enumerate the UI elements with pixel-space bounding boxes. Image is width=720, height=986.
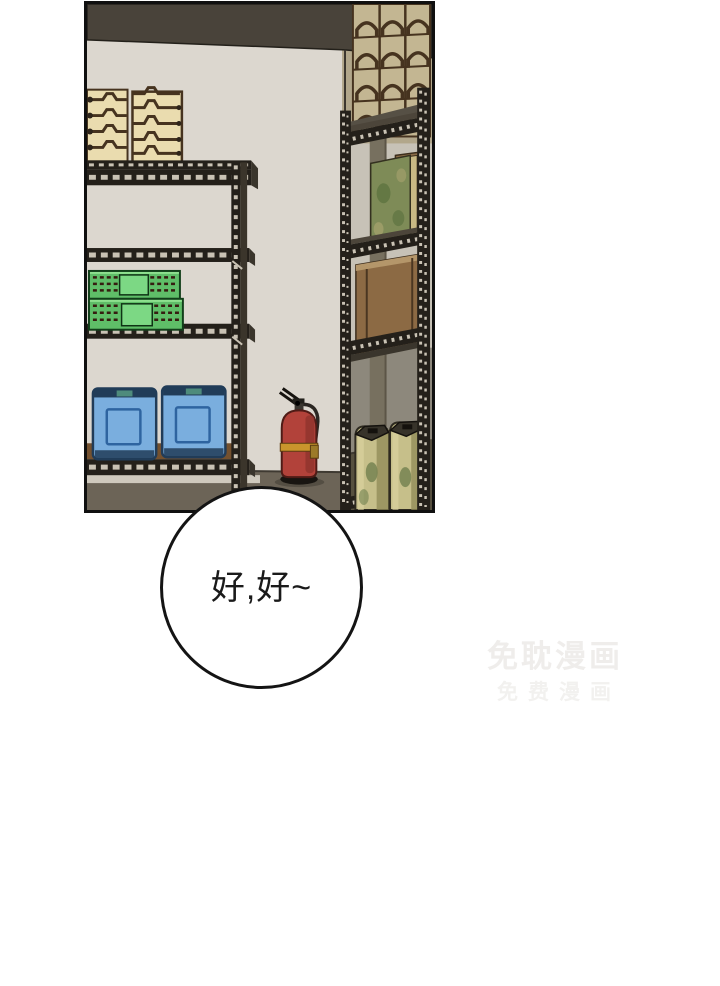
watermark-line2: 免费漫画 — [452, 681, 658, 704]
gas-canisters — [355, 421, 423, 510]
storage-room-scene — [87, 4, 432, 510]
watermark-line1: 免耽漫画 — [452, 640, 658, 674]
green-crates — [89, 271, 183, 330]
storage-room-panel — [84, 1, 435, 513]
comic-page: 好,好~ 免耽漫画 免费漫画 — [0, 0, 720, 986]
speech-bubble-text: 好,好~ — [211, 571, 312, 605]
stacked-trays-top-left — [87, 88, 182, 164]
left-shelf-post — [230, 162, 247, 506]
speech-bubble: 好,好~ — [160, 486, 363, 689]
watermark: 免耽漫画 免费漫画 — [452, 640, 658, 704]
